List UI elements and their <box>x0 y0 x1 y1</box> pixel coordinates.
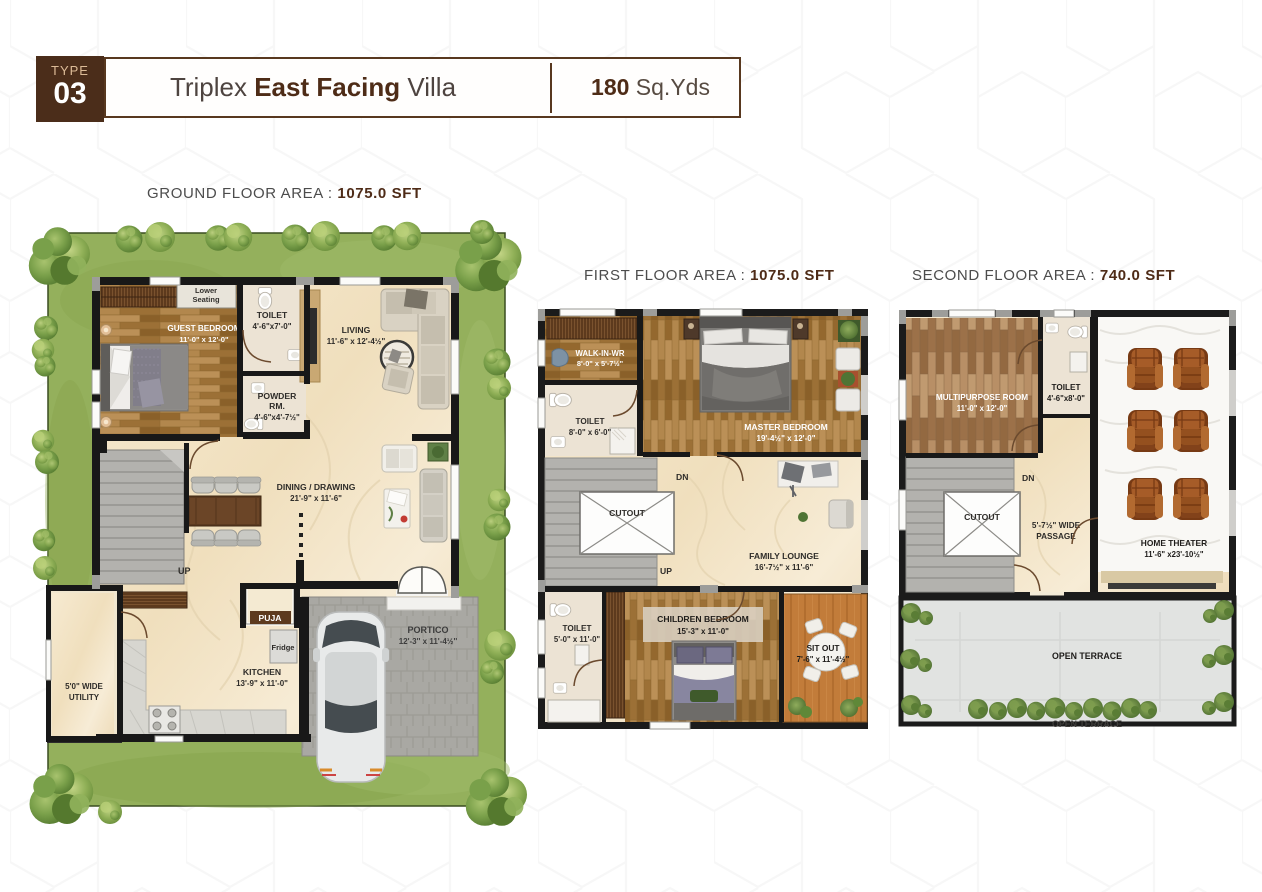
svg-text:UP: UP <box>178 566 191 576</box>
svg-text:Seating: Seating <box>192 295 220 304</box>
svg-text:8'-0" x 6'-0": 8'-0" x 6'-0" <box>569 428 612 437</box>
svg-text:PORTICO: PORTICO <box>407 625 448 635</box>
svg-text:11'-6" x23'-10½": 11'-6" x23'-10½" <box>1144 550 1204 559</box>
svg-text:PUJA: PUJA <box>259 613 282 623</box>
svg-text:POWDER: POWDER <box>258 391 297 401</box>
svg-text:Fridge: Fridge <box>272 643 295 652</box>
svg-text:4'-6"x7'-0": 4'-6"x7'-0" <box>253 322 292 331</box>
svg-text:4'-6"x8'-0": 4'-6"x8'-0" <box>1047 394 1085 403</box>
svg-text:OPEN TERRACE: OPEN TERRACE <box>1052 651 1122 661</box>
svg-text:CUTOUT: CUTOUT <box>964 512 1000 522</box>
svg-text:11'-0" x 12'-0": 11'-0" x 12'-0" <box>957 404 1008 413</box>
svg-text:5'-0" x 11'-0": 5'-0" x 11'-0" <box>554 635 601 644</box>
svg-text:16'-7½" x 11'-6": 16'-7½" x 11'-6" <box>755 563 814 572</box>
svg-text:OPEN TERRACE: OPEN TERRACE <box>1052 719 1122 729</box>
svg-text:15'-3" x 11'-0": 15'-3" x 11'-0" <box>677 627 729 636</box>
svg-text:11'-6" x 12'-4½": 11'-6" x 12'-4½" <box>327 337 386 346</box>
svg-text:MASTER BEDROOM: MASTER BEDROOM <box>744 422 828 432</box>
svg-text:DN: DN <box>676 472 688 482</box>
svg-text:13'-9" x 11'-0": 13'-9" x 11'-0" <box>236 679 288 688</box>
svg-text:TOILET: TOILET <box>257 310 288 320</box>
svg-text:21'-9" x 11'-6": 21'-9" x 11'-6" <box>290 494 342 503</box>
svg-text:Lower: Lower <box>195 286 217 295</box>
svg-text:5'0" WIDE: 5'0" WIDE <box>65 682 103 691</box>
svg-text:11'-0" x 12'-0": 11'-0" x 12'-0" <box>179 335 229 344</box>
svg-text:TOILET: TOILET <box>563 624 592 633</box>
svg-text:UTILITY: UTILITY <box>69 693 100 702</box>
svg-text:GUEST BEDROOM: GUEST BEDROOM <box>167 324 240 333</box>
svg-text:LIVING: LIVING <box>342 325 371 335</box>
svg-text:HOME THEATER: HOME THEATER <box>1141 538 1207 548</box>
svg-text:PASSAGE: PASSAGE <box>1036 532 1076 541</box>
svg-text:7'-6" x 11'-4½": 7'-6" x 11'-4½" <box>797 655 850 664</box>
svg-text:19'-4½" x 12'-0": 19'-4½" x 12'-0" <box>757 434 816 443</box>
svg-text:CUTOUT: CUTOUT <box>609 508 645 518</box>
svg-text:KITCHEN: KITCHEN <box>243 667 281 677</box>
svg-text:WALK-IN-WR: WALK-IN-WR <box>576 349 625 358</box>
svg-text:8'-0" x 5'-7½": 8'-0" x 5'-7½" <box>577 359 624 368</box>
svg-text:MULTIPURPOSE ROOM: MULTIPURPOSE ROOM <box>936 393 1028 402</box>
svg-text:SIT OUT: SIT OUT <box>806 643 840 653</box>
svg-text:TOILET: TOILET <box>576 417 605 426</box>
svg-text:CHILDREN BEDROOM: CHILDREN BEDROOM <box>657 614 749 624</box>
svg-text:FAMILY LOUNGE: FAMILY LOUNGE <box>749 551 819 561</box>
svg-text:TOILET: TOILET <box>1052 383 1081 392</box>
svg-text:4'-6"x4'-7½": 4'-6"x4'-7½" <box>254 413 300 422</box>
svg-text:DINING / DRAWING: DINING / DRAWING <box>277 482 356 492</box>
svg-text:DN: DN <box>1022 473 1034 483</box>
svg-text:RM.: RM. <box>269 401 285 411</box>
svg-text:12'-3'' x 11'-4½'': 12'-3'' x 11'-4½'' <box>399 637 458 646</box>
svg-text:5'-7½" WIDE: 5'-7½" WIDE <box>1032 521 1081 530</box>
svg-text:UP: UP <box>660 566 672 576</box>
